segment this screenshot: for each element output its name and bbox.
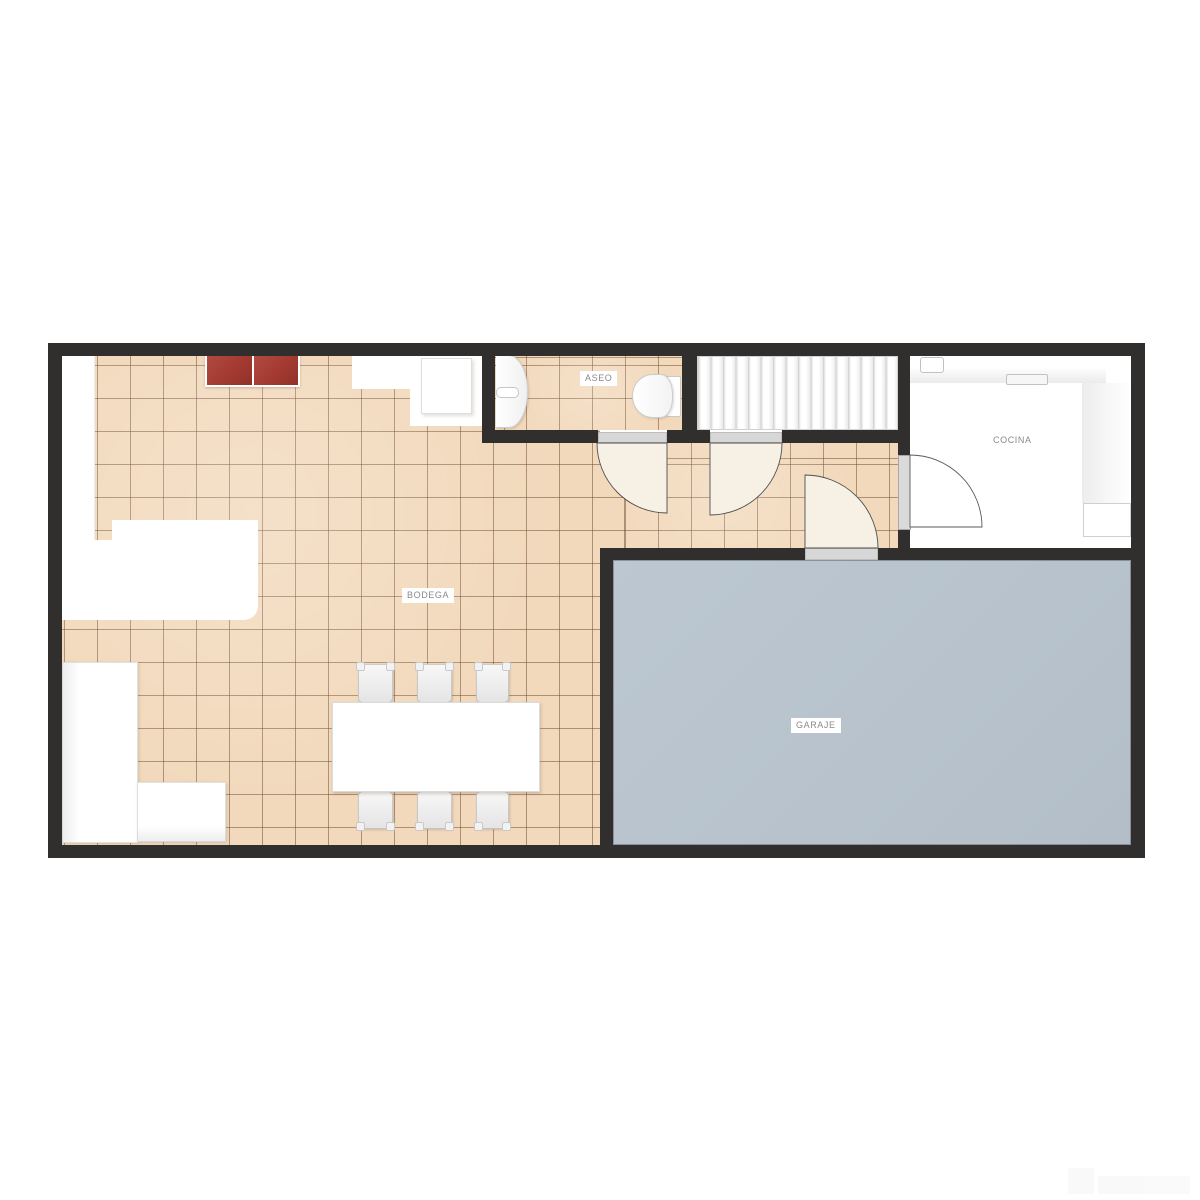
watermark-mark [1068,1168,1094,1194]
door-arc-cocina [910,455,982,527]
door-arc-stairs [710,443,782,515]
label-aseo: ASEO [580,371,617,386]
label-bodega: BODEGA [402,588,454,603]
door-arc-aseo [597,443,667,513]
floor-plan-canvas: ASEO COCINA BODEGA GARAJE [0,0,1200,1200]
door-arcs [0,0,1200,1200]
watermark [1068,1166,1195,1194]
watermark-text-block [1098,1176,1190,1194]
label-cocina: COCINA [988,433,1037,448]
label-garaje: GARAJE [791,718,841,733]
door-arc-garage [805,475,878,548]
